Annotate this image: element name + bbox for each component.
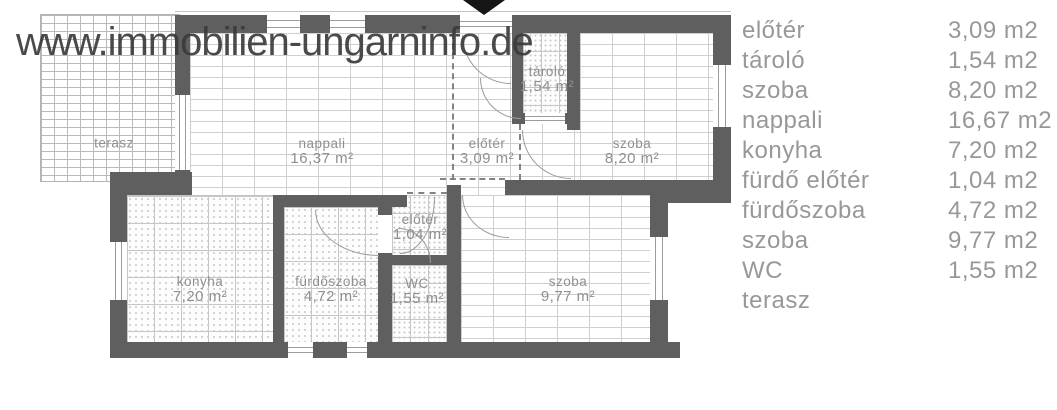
watermark: www.immobilien-ungarninfo.de (16, 20, 533, 65)
legend-value: 1,55 m2 (948, 256, 1038, 286)
room-name: tároló (520, 64, 574, 79)
room-area: 16,37 m² (290, 151, 353, 168)
floor-konyha (127, 196, 273, 342)
konyha-nappali-divider (127, 195, 273, 196)
legend-row: WC 1,55 m2 (742, 256, 1034, 286)
entrance-arrow-icon (463, 0, 505, 15)
dashed-boundary (407, 192, 447, 194)
room-label-wc: WC 1,55 m² (390, 276, 444, 308)
room-area: 4,72 m² (295, 289, 367, 306)
room-label-eloter-104: előtér 1,04 m² (393, 212, 447, 244)
legend-value: 16,67 m2 (948, 106, 1052, 136)
legend-label: terasz (742, 287, 810, 314)
room-name: fürdőszoba (295, 274, 367, 289)
room-label-nappali: nappali 16,37 m² (290, 136, 353, 168)
room-name: szoba (605, 136, 659, 151)
room-label-terasz: terasz (94, 135, 134, 150)
legend-label: fürdőszoba (742, 197, 866, 224)
dashed-boundary (519, 124, 521, 180)
room-area: 3,09 m² (460, 151, 514, 168)
legend-row: terasz (742, 286, 1034, 316)
room-name: terasz (94, 135, 134, 150)
room-label-szoba-977: szoba 9,77 m² (541, 274, 595, 306)
window (650, 237, 668, 300)
wall (512, 15, 731, 33)
legend-label: fürdő előtér (742, 167, 869, 194)
wall (110, 172, 192, 195)
legend-value: 8,20 m2 (948, 76, 1038, 106)
window (175, 95, 190, 170)
legend-value: 4,72 m2 (948, 196, 1038, 226)
legend-row: szoba 8,20 m2 (742, 76, 1034, 106)
legend-row: előtér 3,09 m2 (742, 16, 1034, 46)
dashed-boundary (440, 178, 505, 180)
wall (367, 342, 680, 358)
room-name: előtér (393, 212, 447, 227)
legend-label: konyha (742, 137, 822, 164)
wall (713, 15, 731, 65)
legend-row: tároló 1,54 m2 (742, 46, 1034, 76)
room-label-eloter-309: előtér 3,09 m² (460, 136, 514, 168)
legend-label: előtér (742, 17, 805, 44)
room-name: WC (390, 276, 444, 291)
legend-value: 1,54 m2 (948, 46, 1038, 76)
window (110, 242, 127, 300)
room-name: nappali (290, 136, 353, 151)
room-label-szoba-820: szoba 8,20 m² (605, 136, 659, 168)
legend-label: szoba (742, 77, 809, 104)
room-area: 1,54 m² (520, 79, 574, 96)
window (713, 65, 731, 127)
legend-value: 1,04 m2 (948, 166, 1038, 196)
wall (650, 195, 731, 203)
room-label-furdoszoba: fürdőszoba 4,72 m² (295, 274, 367, 306)
legend-label: WC (742, 257, 783, 284)
legend-row: fürdőszoba 4,72 m2 (742, 196, 1034, 226)
legend-label: nappali (742, 107, 823, 134)
wall (378, 195, 392, 215)
door-threshold (525, 113, 565, 124)
roof-outline (175, 11, 731, 12)
legend-value: 9,77 m2 (948, 226, 1038, 256)
room-area: 1,04 m² (393, 227, 447, 244)
legend-value: 3,09 m2 (948, 16, 1038, 46)
legend-row: fürdő előtér 1,04 m2 (742, 166, 1034, 196)
floor-plan-page: terasz nappali 16,37 m² előtér 3,09 m² t… (0, 0, 1057, 410)
wall (313, 342, 347, 358)
room-legend: előtér 3,09 m2 tároló 1,54 m2 szoba 8,20… (742, 16, 1034, 316)
wall (505, 180, 731, 195)
room-label-tarolo: tároló 1,54 m² (520, 64, 574, 96)
legend-label: szoba (742, 227, 809, 254)
room-area: 7,20 m² (173, 289, 227, 306)
legend-row: konyha 7,20 m2 (742, 136, 1034, 166)
room-name: konyha (173, 274, 227, 289)
window (288, 342, 313, 358)
room-label-konyha: konyha 7,20 m² (173, 274, 227, 306)
room-area: 9,77 m² (541, 289, 595, 306)
window (347, 342, 367, 358)
room-name: szoba (541, 274, 595, 289)
legend-row: nappali 16,67 m2 (742, 106, 1034, 136)
wall (650, 300, 668, 358)
wall (447, 185, 461, 342)
room-area: 8,20 m² (605, 151, 659, 168)
wall (273, 195, 284, 342)
legend-value: 7,20 m2 (948, 136, 1038, 166)
room-area: 1,55 m² (390, 291, 444, 308)
legend-label: tároló (742, 47, 805, 74)
legend-row: szoba 9,77 m2 (742, 226, 1034, 256)
wall (110, 342, 288, 358)
room-name: előtér (460, 136, 514, 151)
wall (110, 195, 127, 242)
